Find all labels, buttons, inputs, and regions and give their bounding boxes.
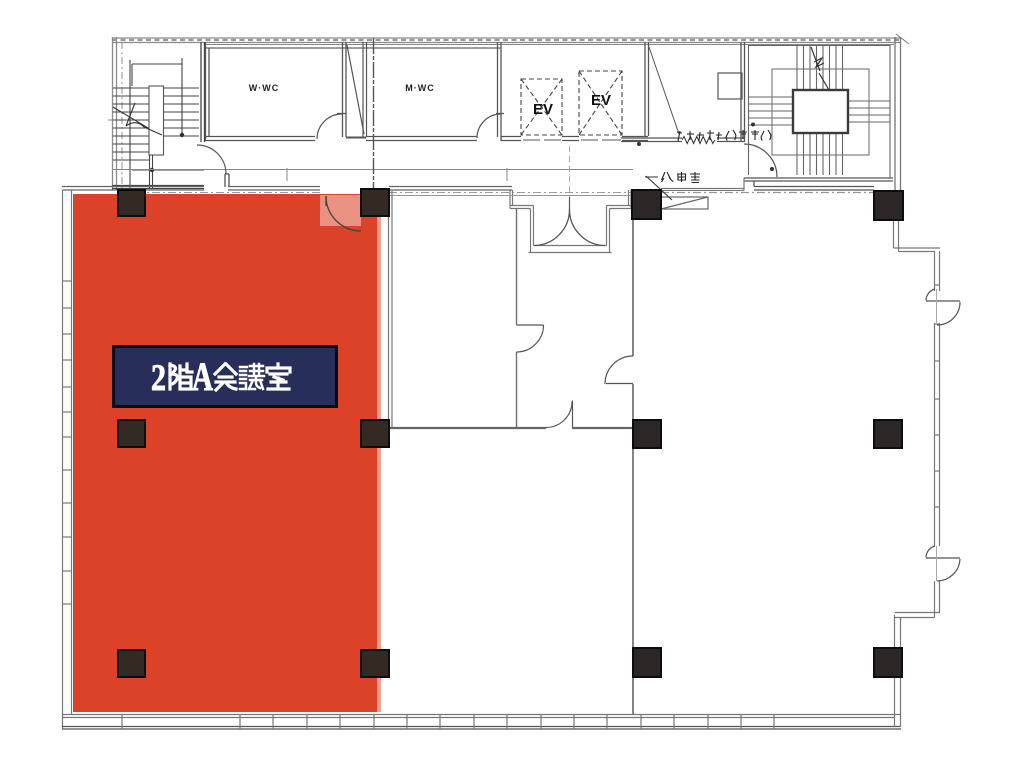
svg-text:A: A <box>192 354 213 399</box>
svg-text:EV: EV <box>591 92 611 109</box>
svg-text:W·WC: W·WC <box>249 83 280 93</box>
svg-text:M·WC: M·WC <box>405 83 435 93</box>
svg-text:2: 2 <box>151 358 166 399</box>
svg-text:EV: EV <box>533 101 553 118</box>
